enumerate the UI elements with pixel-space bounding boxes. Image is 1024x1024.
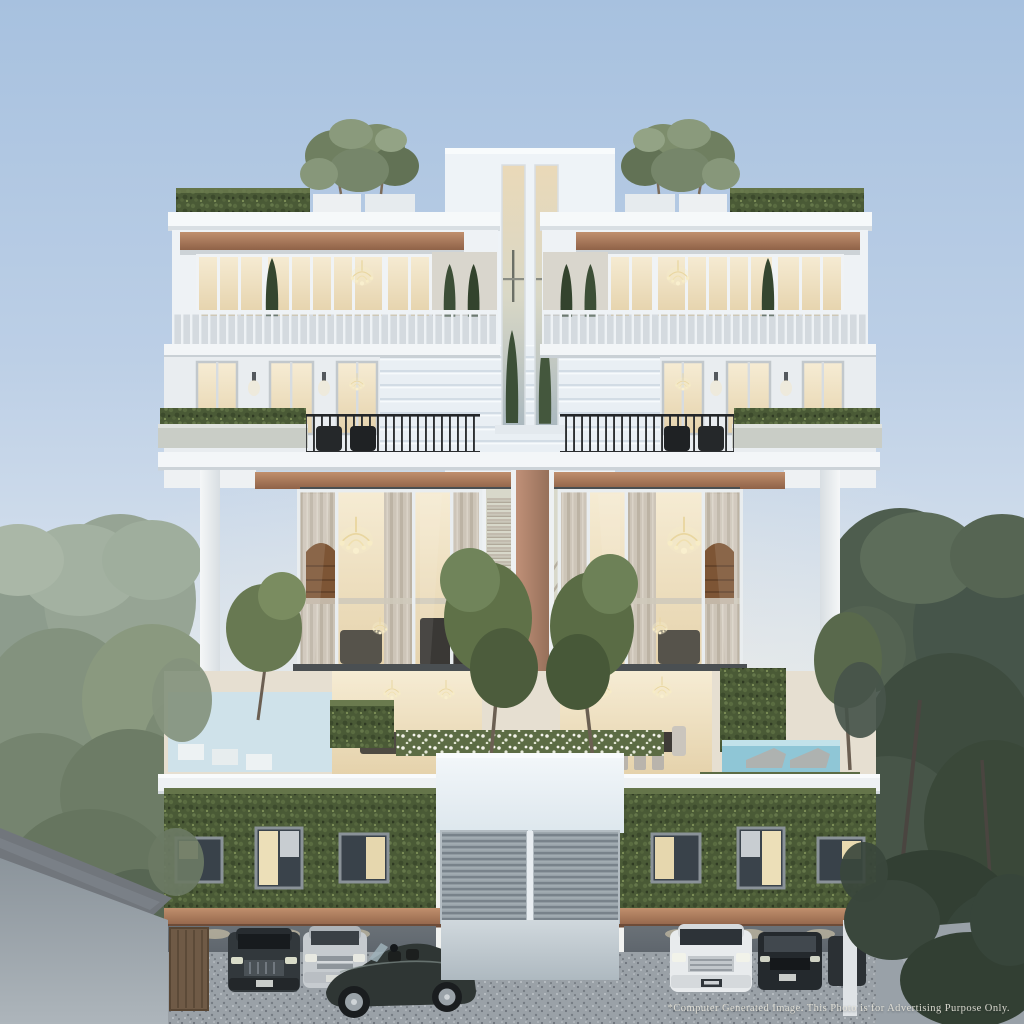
car-dark-minivan bbox=[758, 932, 822, 990]
rendering-canvas bbox=[0, 0, 1024, 1024]
podium-windows bbox=[176, 828, 388, 888]
car-white-suv bbox=[670, 924, 752, 992]
flower-planters bbox=[396, 730, 664, 756]
advertising-disclaimer: *Computer Generated Image. This Photo is… bbox=[668, 1003, 1010, 1014]
vertical-garden-panel bbox=[720, 668, 786, 752]
balcony-chair bbox=[350, 426, 376, 451]
awning bbox=[293, 664, 484, 671]
green-wall-podium bbox=[164, 788, 448, 928]
architectural-rendering: *Computer Generated Image. This Photo is… bbox=[0, 0, 1024, 1024]
balcony-chair bbox=[316, 426, 342, 451]
hedge-cube bbox=[330, 700, 394, 748]
car-dark-suv bbox=[228, 928, 300, 992]
balcony-railing bbox=[172, 314, 497, 344]
garage-door-right bbox=[533, 831, 619, 923]
garage-block bbox=[436, 753, 624, 923]
penthouse-glass-wall bbox=[196, 254, 432, 316]
penthouse-floor bbox=[164, 212, 500, 358]
sofa bbox=[340, 630, 382, 664]
driveway-ramp-wall bbox=[441, 920, 619, 980]
copper-fascia bbox=[180, 232, 464, 250]
garage-door-left bbox=[441, 831, 527, 923]
